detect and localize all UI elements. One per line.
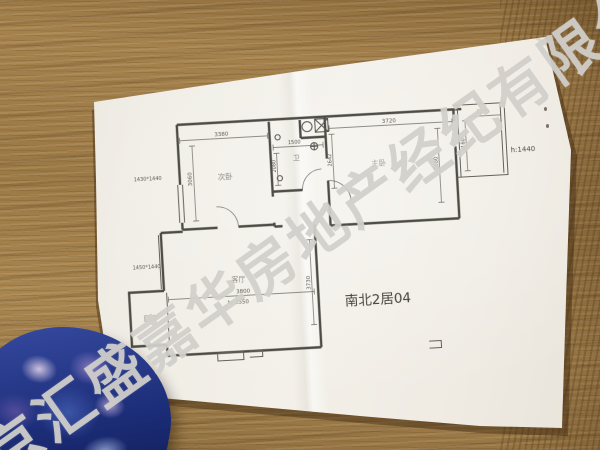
dim-bath-width: 1500 (288, 140, 301, 147)
dim-bedroom2-width: 3380 (214, 132, 229, 139)
room-label-bedroom2: 次卧 (217, 171, 233, 182)
fixture-dot (275, 135, 280, 140)
room-label-bath: 卫 (293, 154, 300, 162)
balcony-height-note: h:1440 (510, 145, 535, 154)
photo-scene: 3380 3060 1430*1440 1500 2080 3720 2642 … (0, 0, 600, 450)
dim-living-window: 1450*1440 (133, 264, 161, 272)
washbasin-icon (302, 121, 313, 132)
dim-bedroom2-depth: 3060 (187, 172, 194, 187)
dim-bath-depth: 2080 (271, 160, 278, 173)
dim-bedroom2-window: 1430*1440 (134, 176, 162, 184)
unit-type-label: 南北2居04 (344, 290, 411, 310)
